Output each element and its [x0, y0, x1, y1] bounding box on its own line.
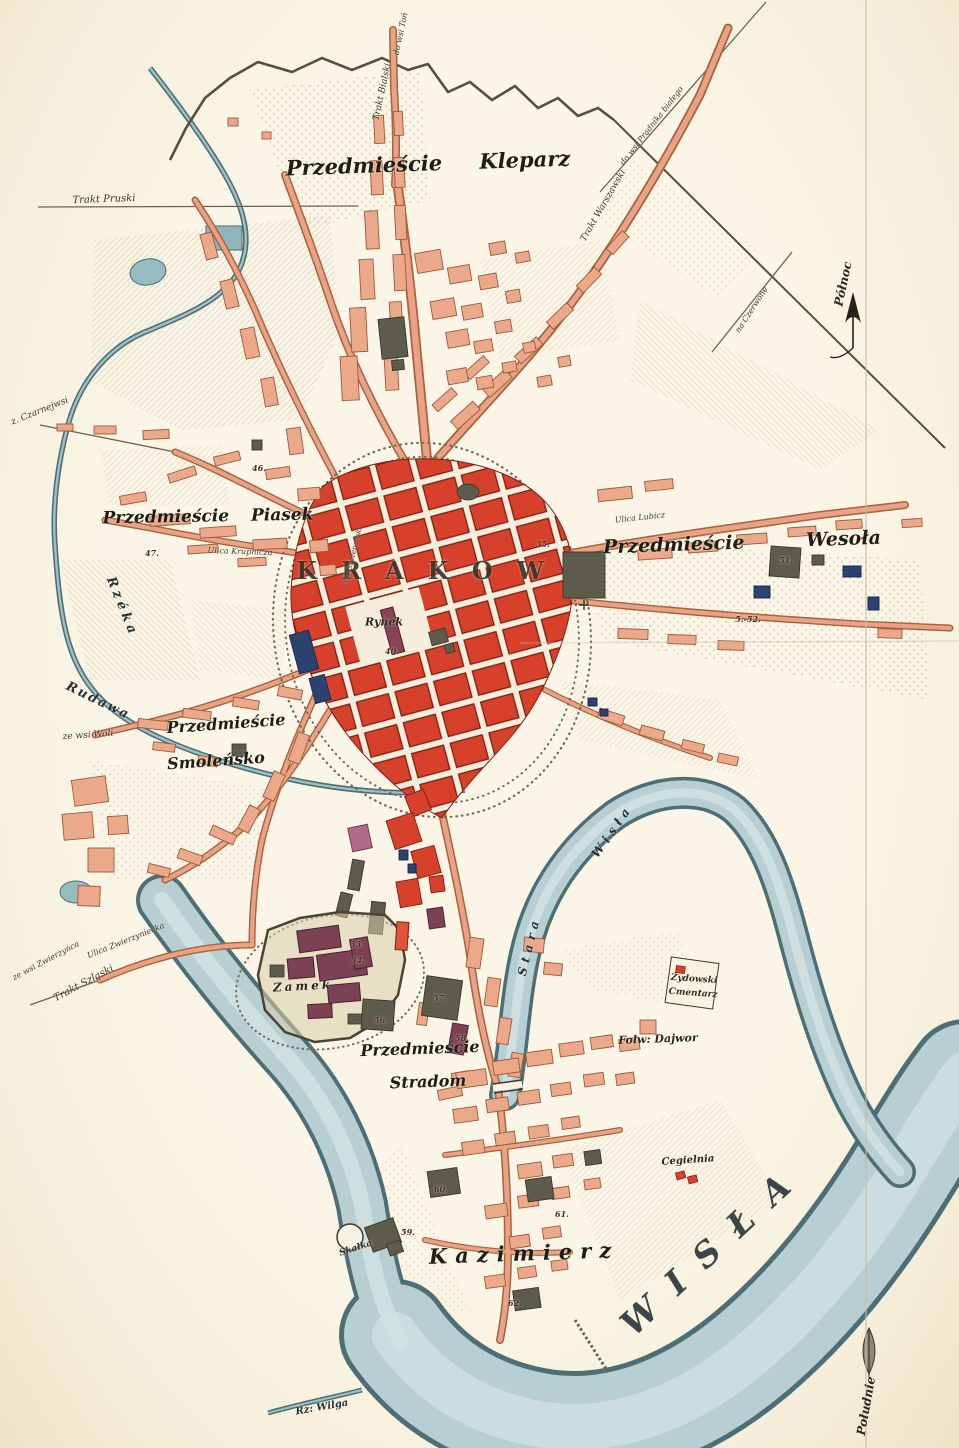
- kleparz-grey-church: [378, 317, 408, 371]
- weir: [575, 1320, 608, 1372]
- old-town-blocks: [289, 459, 573, 818]
- map-graphic: [0, 0, 959, 1448]
- wilga-river: [268, 1390, 362, 1413]
- south-arrow-icon: [863, 1328, 875, 1378]
- north-arrow-icon: [830, 292, 861, 358]
- map-canvas: Przedmieście KleparzPrzedmieście PiasekP…: [0, 0, 959, 1448]
